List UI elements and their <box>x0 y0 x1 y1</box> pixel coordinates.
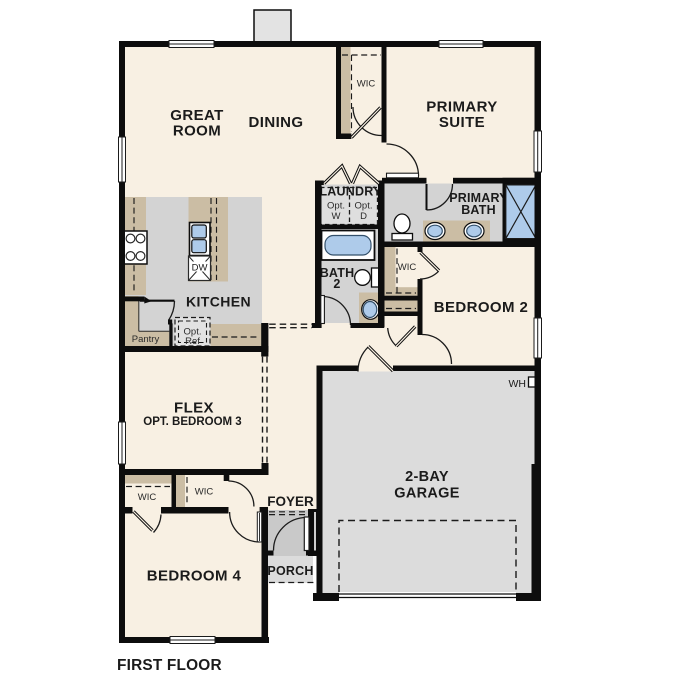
svg-text:W: W <box>332 211 341 222</box>
svg-text:WIC: WIC <box>195 487 214 498</box>
svg-text:DW: DW <box>192 263 208 274</box>
svg-text:D: D <box>360 211 367 222</box>
svg-text:GARAGE: GARAGE <box>394 486 459 502</box>
svg-text:DINING: DINING <box>249 114 304 131</box>
svg-text:WH: WH <box>509 378 527 390</box>
svg-text:ROOM: ROOM <box>173 123 221 140</box>
svg-text:GREAT: GREAT <box>170 107 223 124</box>
svg-text:Opt.: Opt. <box>327 201 345 212</box>
svg-text:2-BAY: 2-BAY <box>405 469 449 485</box>
svg-text:PRIMARY: PRIMARY <box>426 99 497 116</box>
svg-text:BATH: BATH <box>461 203 496 217</box>
svg-text:BEDROOM 2: BEDROOM 2 <box>434 299 528 316</box>
svg-text:BEDROOM 4: BEDROOM 4 <box>147 568 242 585</box>
svg-text:WIC: WIC <box>138 492 157 503</box>
svg-text:2: 2 <box>333 277 340 291</box>
svg-text:FOYER: FOYER <box>267 494 314 509</box>
svg-text:OPT. BEDROOM 3: OPT. BEDROOM 3 <box>143 416 241 428</box>
svg-text:Ref: Ref <box>185 336 200 347</box>
svg-text:LAUNDRY: LAUNDRY <box>319 185 382 199</box>
svg-text:FLEX: FLEX <box>174 400 214 417</box>
svg-text:KITCHEN: KITCHEN <box>186 294 251 310</box>
svg-text:WIC: WIC <box>357 79 376 90</box>
svg-text:Opt.: Opt. <box>355 201 373 212</box>
svg-text:WIC: WIC <box>398 262 417 273</box>
svg-text:PORCH: PORCH <box>267 564 313 578</box>
svg-text:Pantry: Pantry <box>132 334 160 345</box>
svg-text:FIRST FLOOR: FIRST FLOOR <box>117 657 222 674</box>
svg-text:SUITE: SUITE <box>439 114 485 131</box>
